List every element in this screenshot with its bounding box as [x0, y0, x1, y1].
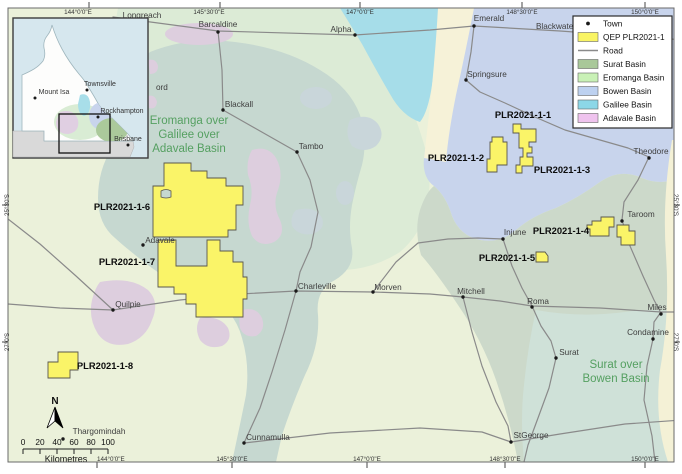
inset-town-label: Mount Isa — [39, 89, 70, 96]
legend-item-label: Bowen Basin — [603, 86, 652, 96]
legend-item-label: Surat Basin — [603, 59, 646, 69]
town-label: Condamine — [627, 328, 669, 337]
town-label: Springsure — [467, 70, 507, 79]
town-label: Tambo — [299, 142, 324, 151]
inset-town-dot — [127, 144, 130, 147]
legend-adavale-swatch — [578, 114, 598, 123]
coord-label-top: 144°0'0"E — [64, 8, 92, 16]
town-dot — [216, 30, 219, 33]
town-dot — [501, 237, 504, 240]
plr-label: PLR2021-1-7 — [99, 256, 155, 267]
town-label: Barcaldine — [199, 20, 238, 29]
scale-tick-label: 20 — [35, 437, 45, 447]
legend-item-label: Galilee Basin — [603, 100, 652, 110]
legend-item-label: Eromanga Basin — [603, 73, 665, 83]
legend-galilee-swatch — [578, 100, 598, 109]
map-figure: Eromanga over Galilee over Adavale Basin… — [0, 0, 682, 474]
town-label: Surat — [559, 348, 579, 357]
town-label: Alpha — [331, 25, 352, 34]
coord-label-right: 25°30'S — [672, 194, 680, 216]
town-dot — [472, 24, 475, 27]
legend-town-dot-icon — [586, 22, 590, 26]
coord-label-right: 27°0'S — [672, 333, 680, 351]
coord-label-left: 27°0'S — [3, 333, 11, 351]
region-label-eromanga: Adavale Basin — [152, 143, 226, 155]
town-dot — [647, 156, 650, 159]
north-label: N — [51, 396, 58, 407]
region-label-eromanga: Eromanga over — [150, 115, 229, 127]
coord-label-top: 145°30'0"E — [193, 8, 224, 16]
scale-tick-label: 40 — [52, 437, 62, 447]
legend-bowen-swatch — [578, 87, 598, 96]
scale-tick-label: 100 — [101, 437, 115, 447]
plr-label: PLR2021-1-2 — [428, 152, 484, 163]
map-canvas: Eromanga over Galilee over Adavale Basin… — [0, 0, 682, 474]
coord-label-top: 148°30'0"E — [506, 8, 537, 16]
town-label: Roma — [527, 297, 549, 306]
town-label: Blackall — [225, 100, 253, 109]
inset-town-dot — [97, 116, 100, 119]
plr-label: PLR2021-1-8 — [77, 360, 133, 371]
town-label: Adavale — [145, 236, 175, 245]
town-dot — [353, 33, 356, 36]
town-dot — [651, 337, 654, 340]
inset-town-label: Brisbane — [114, 136, 142, 143]
inset-map: Townsville Mount Isa Rockhampton Brisban… — [13, 18, 148, 158]
inset-town-label: Rockhampton — [100, 108, 143, 115]
town-label: Morven — [374, 283, 402, 292]
legend-item-label: Road — [603, 46, 623, 56]
town-label: Quilpie — [115, 300, 141, 309]
plr-label: PLR2021-1-3 — [534, 164, 590, 175]
inset-town-label: Townsville — [84, 81, 116, 88]
plr-label: PLR2021-1-1 — [495, 109, 551, 120]
town-label: Thargomindah — [73, 427, 126, 436]
region-label-eromanga: Galilee over — [158, 129, 220, 141]
plr-polygon-6-hole — [161, 190, 171, 199]
town-label: Mitchell — [457, 287, 485, 296]
town-label: ord — [156, 83, 168, 92]
town-label: Injune — [504, 228, 527, 237]
coord-label-top: 150°0'0"E — [631, 8, 659, 16]
region-label-surat: Surat over — [589, 359, 642, 371]
town-dot — [554, 356, 557, 359]
town-dot — [659, 312, 662, 315]
town-label: Miles — [647, 303, 666, 312]
scale-tick-label: 0 — [21, 437, 26, 447]
town-label: Blackwater — [536, 22, 576, 31]
town-label: StGeorge — [513, 431, 548, 440]
scale-tick-label: 80 — [86, 437, 96, 447]
coord-label-left: 25°30'S — [3, 194, 11, 216]
plr-label: PLR2021-1-4 — [533, 225, 590, 236]
legend-eromanga-swatch — [578, 73, 598, 82]
inset-town-dot — [34, 97, 37, 100]
town-label: Taroom — [627, 210, 654, 219]
town-dot — [620, 219, 623, 222]
legend-item-label: QEP PLR2021-1 — [603, 32, 665, 42]
legend-surat-swatch — [578, 60, 598, 69]
inset-town-dot — [86, 89, 89, 92]
legend-item-label: Adavale Basin — [603, 113, 656, 123]
coord-label-top: 147°0'0"E — [346, 8, 374, 16]
town-label: Emerald — [474, 14, 505, 23]
legend: Town QEP PLR2021-1 Road Surat Basin Erom… — [573, 16, 672, 128]
town-dot — [61, 437, 64, 440]
town-label: Charleville — [298, 282, 337, 291]
town-label: Theodore — [633, 147, 668, 156]
town-dot — [111, 308, 114, 311]
scale-tick-label: 60 — [69, 437, 79, 447]
plr-label: PLR2021-1-6 — [94, 201, 150, 212]
town-label: Cunnamulla — [246, 433, 290, 442]
legend-item-label: Town — [603, 19, 623, 29]
region-label-surat: Bowen Basin — [582, 373, 649, 385]
town-dot — [509, 440, 512, 443]
plr-label: PLR2021-1-5 — [479, 252, 535, 263]
legend-plr-swatch — [578, 33, 598, 42]
town-dot — [141, 243, 144, 246]
plr-polygon-5 — [536, 252, 548, 262]
